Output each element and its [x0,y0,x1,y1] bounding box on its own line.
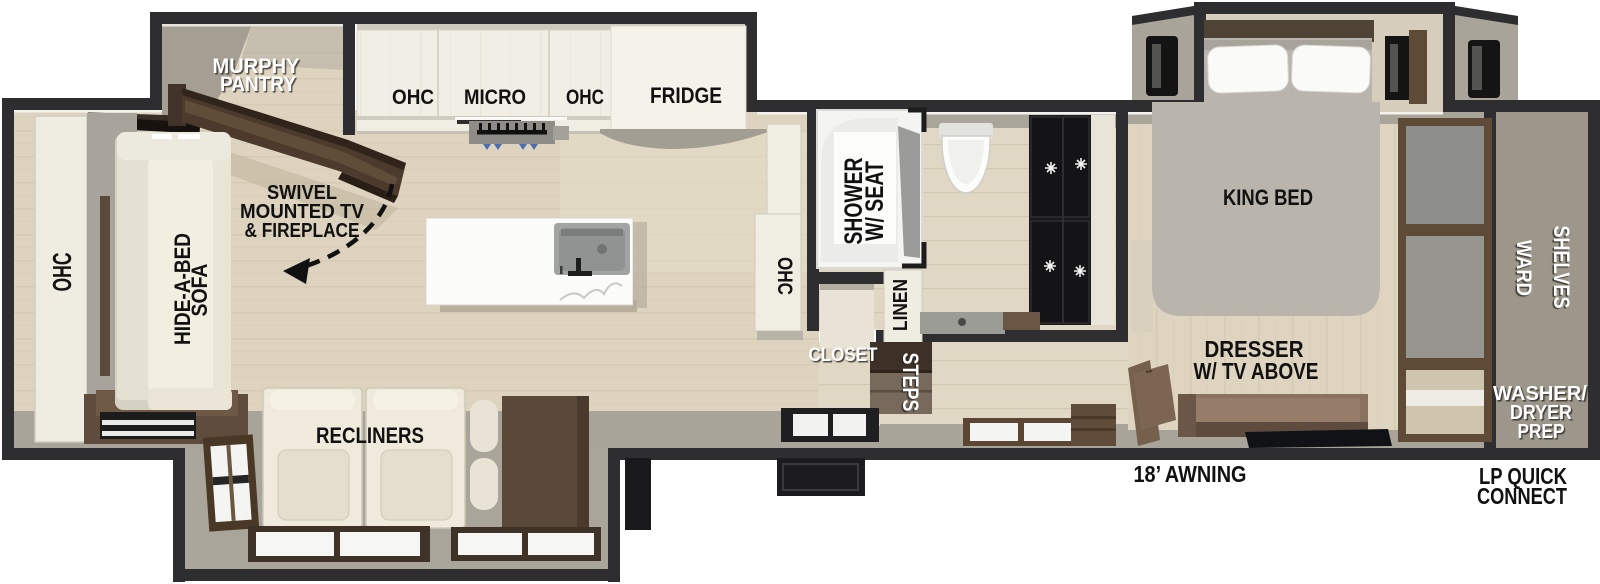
svg-text:FRIDGE: FRIDGE [650,83,722,108]
svg-text:LINEN: LINEN [890,279,912,331]
svg-text:RECLINERS: RECLINERS [316,423,424,448]
svg-text:18’ AWNING: 18’ AWNING [1134,461,1247,487]
svg-text:& FIREPLACE: & FIREPLACE [245,219,360,242]
svg-text:WARD: WARD [1512,240,1535,296]
svg-text:SHELVES: SHELVES [1549,226,1574,309]
svg-text:OHC: OHC [392,85,434,109]
svg-text:CLOSET: CLOSET [809,345,878,366]
svg-text:PANTRY: PANTRY [220,72,296,96]
svg-text:OHC: OHC [566,85,604,109]
svg-text:W/ SEAT: W/ SEAT [861,161,889,241]
svg-text:OHC: OHC [773,257,796,295]
svg-text:W/ TV ABOVE: W/ TV ABOVE [1194,358,1319,384]
svg-text:MICRO: MICRO [464,85,526,109]
svg-text:KING BED: KING BED [1223,185,1313,210]
svg-text:PREP: PREP [1518,421,1565,443]
svg-text:CONNECT: CONNECT [1477,483,1567,509]
svg-text:OHC: OHC [47,252,77,291]
svg-text:STEPS: STEPS [898,353,923,412]
svg-text:SOFA: SOFA [187,263,212,316]
